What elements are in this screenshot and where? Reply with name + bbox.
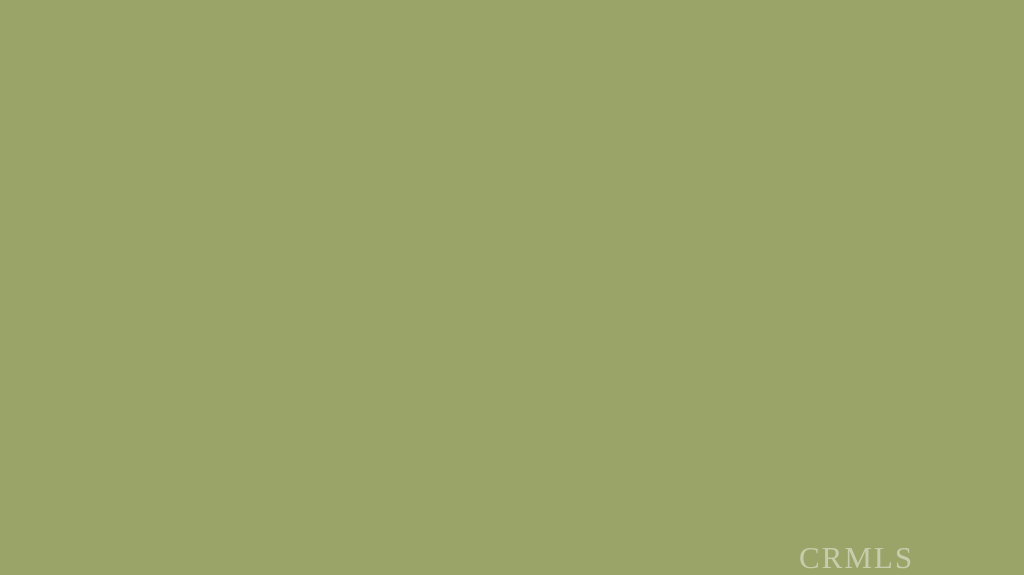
aerial-photo-svg — [0, 0, 1024, 575]
listing-photo: CRMLS — [0, 0, 1024, 575]
